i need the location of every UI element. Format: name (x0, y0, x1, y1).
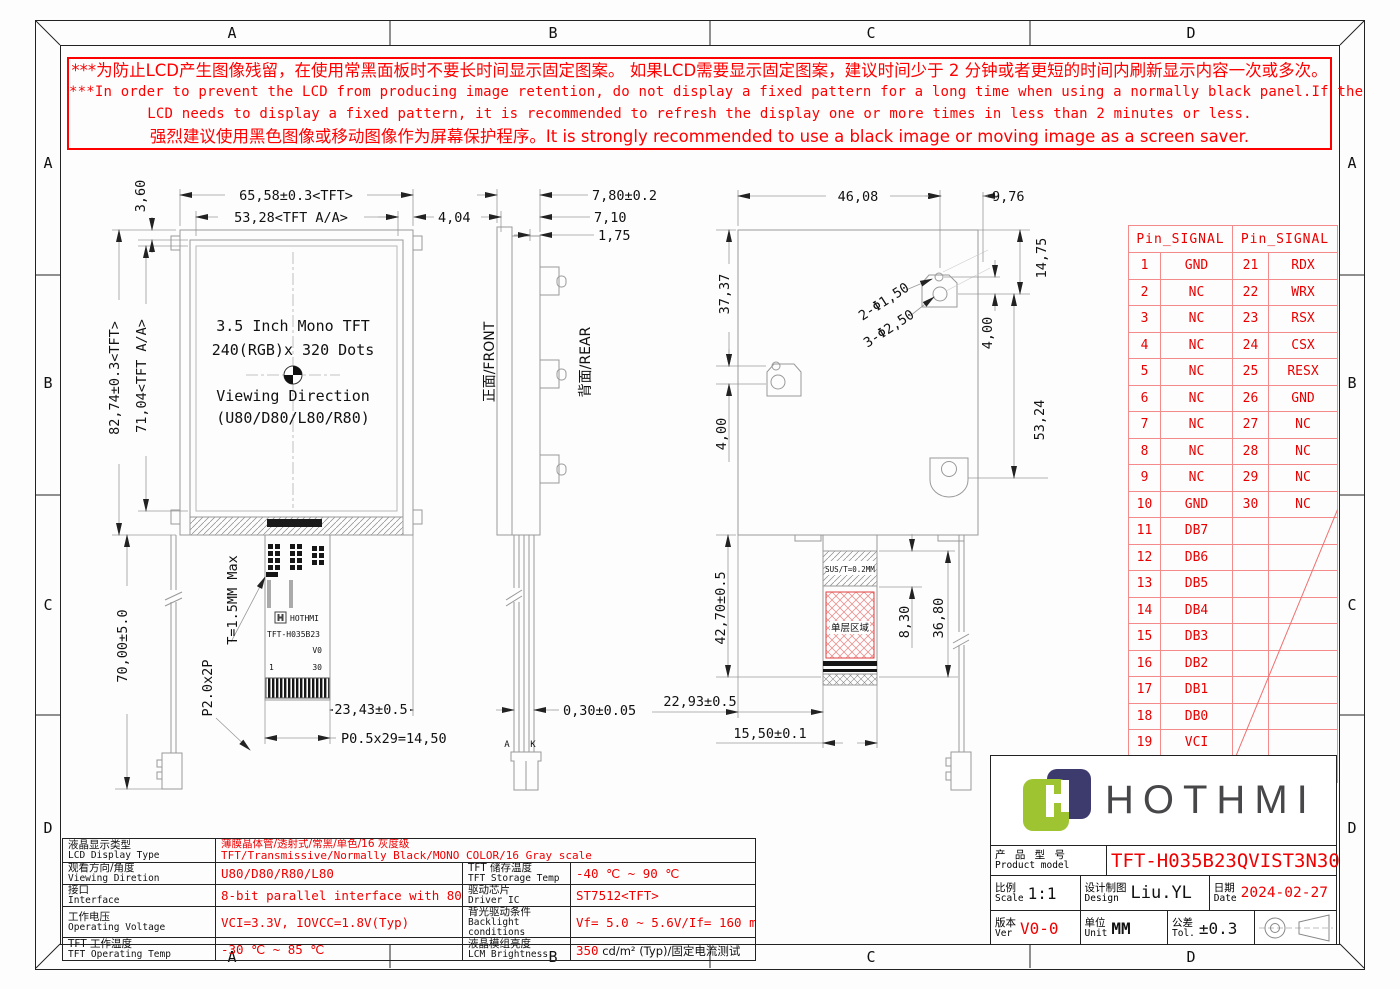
pin-signal-cell: RDX (1269, 253, 1338, 280)
third-angle-projection-icon (1255, 912, 1335, 945)
spec-label-en: Driver IC (468, 896, 565, 906)
date-label-cn: 日期 (1214, 883, 1237, 894)
pin-signal-cell: NC (1161, 412, 1233, 439)
spec-label-viewing: 观看方向/角度 Viewing Diretion (63, 862, 216, 884)
unit-label-cn: 单位 (1085, 918, 1108, 929)
dim-rear-left-upper: 37,37 (717, 274, 733, 315)
dim-rear-sus-len: 8,30 (897, 606, 913, 639)
dim-rear-left-lower: 4,00 (714, 418, 730, 451)
spec-row-interface: 接口 Interface 8-bit parallel interface wi… (63, 884, 756, 906)
side-cathode-label: K (530, 740, 536, 750)
dim-front-offset: 4,04 (438, 210, 471, 226)
spec-label-brightness: 液晶模组亮度 LCM Brightness (463, 938, 571, 960)
fpc-brand-text: HOTHMI (290, 614, 319, 623)
fpc-model-text: TFT-H035B23 (267, 630, 320, 639)
pin-signal-cell: NC (1161, 438, 1233, 465)
pin-signal-cell: RESX (1269, 359, 1338, 386)
fpc-version-text: V0 (312, 646, 322, 655)
pin-number-cell: 27 (1233, 412, 1269, 439)
pin-table-row: 4NC24CSX (1129, 332, 1338, 359)
dim-front-aa-width: 53,28<TFT A/A> (234, 210, 348, 226)
pin-signal-cell (1269, 650, 1338, 677)
pin-table-row: 3NC23RSX (1129, 306, 1338, 333)
spec-brightness-number: 350 (576, 943, 599, 958)
pin-table-row: 6NC26GND (1129, 385, 1338, 412)
pin-signal-cell (1269, 677, 1338, 704)
design-label-en: Design (1085, 894, 1127, 904)
side-label-rear: 背面/REAR (578, 326, 594, 397)
pin-number-cell: 15 (1129, 624, 1161, 651)
ver-label-cn: 版本 (995, 918, 1016, 929)
dim-front-height: 82,74±0.3<TFT> (107, 321, 123, 435)
pin-table-row: 18DB0 (1129, 703, 1338, 730)
spec-value-storage-temp: -40 ℃ ~ 90 ℃ (571, 862, 756, 884)
spec-label-en: Backlight conditions (468, 918, 565, 937)
pin-signal-cell: RSX (1269, 306, 1338, 333)
pin-table-row: 15DB3 (1129, 624, 1338, 651)
spec-label-backlight: 背光驱动条件 Backlight conditions (463, 907, 571, 938)
fpc-logo-icon (275, 612, 286, 623)
pin-signal-cell: DB0 (1161, 703, 1233, 730)
projection-symbol-cell (1255, 911, 1336, 945)
tol-value: ±0.3 (1199, 919, 1238, 938)
pin-number-cell: 28 (1233, 438, 1269, 465)
rear-single-layer-label: 单层区域 (831, 622, 870, 634)
pin-table-row: 5NC25RESX (1129, 359, 1338, 386)
pin-table-row: 19VCI (1129, 730, 1338, 757)
pin-signal-cell: DB2 (1161, 650, 1233, 677)
spec-label-en: LCM Brightness (468, 950, 565, 960)
pin-table-row: 11DB7 (1129, 518, 1338, 545)
pin-signal-cell: DB6 (1161, 544, 1233, 571)
spec-label-en: TFT Operating Temp (68, 950, 210, 960)
pin-table-header-row: Pin_SIGNAL Pin_SIGNAL (1129, 226, 1338, 253)
unit-cell: 单位 Unit MM (1081, 911, 1169, 945)
rear-sus-label: SUS/T=0.2MM (825, 565, 875, 574)
scale-label-en: Scale (995, 894, 1024, 904)
date-cell: 日期 Date 2024-02-27 (1210, 876, 1336, 910)
pin-number-cell: 7 (1129, 412, 1161, 439)
pin-number-cell: 12 (1129, 544, 1161, 571)
center-mark-icon (284, 366, 302, 384)
pin-signal-cell: NC (1161, 279, 1233, 306)
pin-number-cell: 9 (1129, 465, 1161, 492)
pin-table-header-left: Pin_SIGNAL (1129, 226, 1233, 253)
title-block: HOTHMI 产 品 型 号 Product model TFT-H035B23… (990, 755, 1337, 945)
pin-signal-cell: DB1 (1161, 677, 1233, 704)
pin-table-body: 1GND21RDX2NC22WRX3NC23RSX4NC24CSX5NC25RE… (1129, 253, 1338, 783)
spec-value-backlight: Vf= 5.0 ~ 5.6V/If= 160 mA (571, 907, 756, 938)
pin-signal-cell (1269, 730, 1338, 757)
pin-number-cell (1233, 571, 1269, 598)
pin-table-row: 2NC22WRX (1129, 279, 1338, 306)
fpc-pin1-text: 1 (269, 663, 274, 672)
pin-table-row: 14DB4 (1129, 597, 1338, 624)
dim-rear-top: 46,08 (838, 189, 879, 205)
pin-signal-cell: DB7 (1161, 518, 1233, 545)
pin-number-cell: 1 (1129, 253, 1161, 280)
pin-number-cell (1233, 544, 1269, 571)
scale-value: 1:1 (1028, 884, 1057, 903)
pin-signal-cell (1269, 544, 1338, 571)
pin-number-cell (1233, 597, 1269, 624)
pin-signal-cell: GND (1161, 491, 1233, 518)
product-model-label: 产 品 型 号 Product model (991, 846, 1107, 875)
pin-table-row: 10GND30NC (1129, 491, 1338, 518)
dim-front-width: 65,58±0.3<TFT> (239, 188, 353, 204)
pin-signal-cell: GND (1161, 253, 1233, 280)
pin-signal-cell (1269, 703, 1338, 730)
dim-front-corner: 3,60 (133, 180, 149, 213)
pin-number-cell: 16 (1129, 650, 1161, 677)
product-label-en: Product model (995, 861, 1069, 871)
pin-table-row: 7NC27NC (1129, 412, 1338, 439)
spec-label-en: Interface (68, 896, 210, 906)
pin-signal-cell: NC (1269, 438, 1338, 465)
pin-number-cell: 11 (1129, 518, 1161, 545)
dim-thickness-label: T=1.5MM Max (225, 555, 241, 644)
product-model-row: 产 品 型 号 Product model TFT-H035B23QVIST3N… (991, 845, 1336, 875)
ver-value: V0-0 (1020, 919, 1059, 938)
spec-label-interface: 接口 Interface (63, 884, 216, 906)
dim-side-thk2: 7,10 (594, 210, 627, 226)
pin-signal-cell: NC (1269, 465, 1338, 492)
spec-row-operating-temp: TFT 工作温度 TFT Operating Temp -30 ℃ ~ 85 ℃… (63, 938, 756, 960)
spec-label-display-type: 液晶显示类型 LCD Display Type (63, 839, 216, 863)
design-value: Liu.YL (1131, 883, 1192, 903)
pin-number-cell: 2 (1129, 279, 1161, 306)
brand-wordmark: HOTHMI (1105, 778, 1317, 823)
scale-label-cn: 比例 (995, 883, 1024, 894)
tol-label-cn: 公差 (1172, 918, 1195, 929)
pin-table-row: 17DB1 (1129, 677, 1338, 704)
pin-number-cell: 19 (1129, 730, 1161, 757)
pin-table-row: 12DB6 (1129, 544, 1338, 571)
pin-table-row: 16DB2 (1129, 650, 1338, 677)
version-cell: 版本 Ver V0-0 (991, 911, 1081, 945)
tol-label-en: Tol. (1172, 929, 1195, 939)
dim-rear-right-top: 14,75 (1034, 238, 1050, 279)
pin-number-cell: 29 (1233, 465, 1269, 492)
date-label-en: Date (1214, 894, 1237, 904)
pin-signal-cell: CSX (1269, 332, 1338, 359)
fpc-pin30-text: 30 (312, 663, 322, 672)
tolerance-cell: 公差 Tol. ±0.3 (1168, 911, 1255, 945)
pin-number-cell: 14 (1129, 597, 1161, 624)
side-label-front: 正面/FRONT (482, 321, 498, 402)
pin-number-cell: 17 (1129, 677, 1161, 704)
datasheet-page: A B C D A B C D A B C D A B C D ***为防止LC… (0, 0, 1400, 989)
design-label-cn: 设计制图 (1085, 883, 1127, 894)
dim-front-aa-height: 71,04<TFT A/A> (134, 319, 150, 433)
spec-value-display-type: 薄膜晶体管/透射式/常黑/单色/16 灰度级 TFT/Transmissive/… (216, 839, 756, 863)
product-model-value: TFT-H035B23QVIST3N30 (1111, 850, 1340, 872)
design-cell: 设计制图 Design Liu.YL (1081, 876, 1210, 910)
pin-number-cell: 23 (1233, 306, 1269, 333)
spec-brightness-condition: cd/m² (Typ)/固定电流测试 (599, 944, 741, 958)
pin-number-cell: 6 (1129, 385, 1161, 412)
spec-value-operating-temp: -30 ℃ ~ 85 ℃ (216, 938, 463, 960)
spec-label-en: Operating Voltage (68, 923, 210, 933)
unit-label-en: Unit (1085, 929, 1108, 939)
logo-row: HOTHMI (991, 756, 1336, 845)
dim-rear-right-main: 53,24 (1032, 400, 1048, 441)
pin-signal-cell (1269, 597, 1338, 624)
dim-side-total: 7,80±0.2 (592, 188, 657, 204)
spec-table: 液晶显示类型 LCD Display Type 薄膜晶体管/透射式/常黑/单色/… (62, 838, 756, 961)
pin-number-cell: 5 (1129, 359, 1161, 386)
spec-row-viewing: 观看方向/角度 Viewing Diretion U80/D80/R80/L80… (63, 862, 756, 884)
pin-number-cell: 24 (1233, 332, 1269, 359)
pin-table-row: 9NC29NC (1129, 465, 1338, 492)
spec-label-storage-temp: TFT 储存温度 TFT Storage Temp (463, 862, 571, 884)
scale-cell: 比例 Scale 1:1 (991, 876, 1081, 910)
spec-label-en: Viewing Diretion (68, 874, 210, 884)
pin-signal-cell: GND (1269, 385, 1338, 412)
pin-signal-cell: NC (1161, 359, 1233, 386)
side-view (497, 227, 566, 790)
ver-label-en: Ver (995, 929, 1016, 939)
front-dimensions (112, 189, 434, 789)
pin-signal-cell: NC (1161, 465, 1233, 492)
ver-unit-tol-row: 版本 Ver V0-0 单位 Unit MM 公差 Tol. ±0.3 (991, 910, 1336, 945)
pin-signal-cell: NC (1161, 306, 1233, 333)
dim-rear-tail-offset: 22,93±0.5 (663, 694, 736, 710)
pin-table-row: 1GND21RDX (1129, 253, 1338, 280)
spec-value-brightness: 350 cd/m² (Typ)/固定电流测试 (571, 938, 756, 960)
dim-fpc-length: 70,00±5.0 (115, 609, 131, 682)
pin-table-row: 8NC28NC (1129, 438, 1338, 465)
pin-number-cell: 22 (1233, 279, 1269, 306)
spec-row-voltage: 工作电压 Operating Voltage VCI=3.3V, IOVCC=1… (63, 907, 756, 938)
pin-signal-cell: VCI (1161, 730, 1233, 757)
pin-signal-cell: NC (1161, 332, 1233, 359)
dim-fpc-right: 23,43±0.5 (334, 702, 407, 718)
pin-number-cell: 13 (1129, 571, 1161, 598)
spec-label-voltage: 工作电压 Operating Voltage (63, 907, 216, 938)
pin-number-cell (1233, 518, 1269, 545)
pin-number-cell: 30 (1233, 491, 1269, 518)
dim-fpc-pitch: P0.5x29=14,50 (341, 731, 447, 747)
spec-label-driver-ic: 驱动芯片 Driver IC (463, 884, 571, 906)
dim-rear-tail-len: 42,70±0.5 (713, 571, 729, 644)
pin-signal-cell: WRX (1269, 279, 1338, 306)
pin-signal-cell (1269, 624, 1338, 651)
dim-side-peg: 1,75 (598, 228, 631, 244)
pin-signal-cell: DB3 (1161, 624, 1233, 651)
pin-signal-cell: NC (1269, 491, 1338, 518)
side-dimensions (477, 189, 594, 710)
pin-number-cell: 26 (1233, 385, 1269, 412)
product-model-value-cell: TFT-H035B23QVIST3N30 (1107, 846, 1336, 875)
pin-signal-cell: DB5 (1161, 571, 1233, 598)
side-anode-label: A (504, 740, 510, 750)
spec-value-voltage: VCI=3.3V, IOVCC=1.8V(Typ) (216, 907, 463, 938)
pin-number-cell: 8 (1129, 438, 1161, 465)
pin-number-cell: 25 (1233, 359, 1269, 386)
dim-rear-right-mid: 4,00 (980, 317, 996, 350)
pin-signal-table: Pin_SIGNAL Pin_SIGNAL 1GND21RDX2NC22WRX3… (1128, 225, 1338, 783)
pin-signal-cell: DB4 (1161, 597, 1233, 624)
spec-value-viewing: U80/D80/R80/L80 (216, 862, 463, 884)
pin-number-cell: 3 (1129, 306, 1161, 333)
front-text-viewdir: Viewing Direction (216, 387, 370, 405)
dim-connector-label: P2.0x2P (200, 660, 216, 717)
hothmi-logo-icon (1019, 767, 1095, 835)
front-text-resolution: 240(RGB)x 320 Dots (212, 341, 375, 359)
unit-value: MM (1111, 919, 1130, 938)
pin-number-cell: 21 (1233, 253, 1269, 280)
pin-signal-cell: NC (1269, 412, 1338, 439)
dim-side-fpc-thk: 0,30±0.05 (563, 703, 636, 719)
pin-table-header-right: Pin_SIGNAL (1233, 226, 1338, 253)
dim-rear-top-right: 9,76 (992, 189, 1025, 205)
spec-value-driver-ic: ST7512<TFT> (571, 884, 756, 906)
dim-rear-tail-total: 36,80 (931, 598, 947, 639)
spec-label-operating-temp: TFT 工作温度 TFT Operating Temp (63, 938, 216, 960)
scale-design-date-row: 比例 Scale 1:1 设计制图 Design Liu.YL 日期 Date … (991, 875, 1336, 910)
pin-number-cell: 18 (1129, 703, 1161, 730)
spec-value-interface: 8-bit parallel interface with 8080 (216, 884, 463, 906)
fpc-pads (266, 544, 324, 577)
front-text-angles: (U80/D80/L80/R80) (216, 409, 370, 427)
pin-signal-cell: NC (1161, 385, 1233, 412)
spec-row-display-type: 液晶显示类型 LCD Display Type 薄膜晶体管/透射式/常黑/单色/… (63, 839, 756, 863)
pin-number-cell (1233, 624, 1269, 651)
spec-label-en: TFT Storage Temp (468, 874, 565, 884)
date-value: 2024-02-27 (1241, 885, 1328, 901)
spec-label-en: LCD Display Type (68, 851, 210, 861)
pin-number-cell: 4 (1129, 332, 1161, 359)
pin-number-cell (1233, 650, 1269, 677)
dim-rear-tail-width: 15,50±0.1 (733, 726, 806, 742)
pin-number-cell: 10 (1129, 491, 1161, 518)
spec-value-en: TFT/Transmissive/Normally Black/MONO COL… (221, 850, 750, 862)
front-text-size: 3.5 Inch Mono TFT (216, 317, 370, 335)
